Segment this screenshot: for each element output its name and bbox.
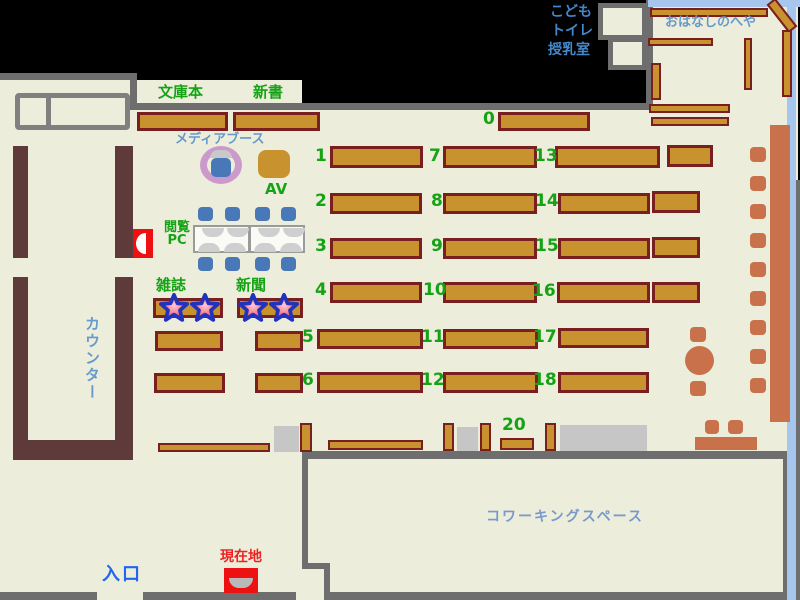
labels-layer: 文庫本新書017132814391541016511176121820メディアブ… bbox=[0, 0, 800, 600]
label-av: AV bbox=[265, 181, 287, 197]
label-shelf-number-14: 14 bbox=[535, 192, 559, 210]
label-story-room: おはなしのへや bbox=[665, 16, 756, 30]
label-shelf-number-4: 4 bbox=[315, 281, 327, 299]
label-shelf-number-0: 0 bbox=[483, 110, 495, 128]
label-shelf-number-6: 6 bbox=[302, 371, 314, 389]
label-shelf-number-20: 20 bbox=[502, 416, 526, 434]
label-coworking-space: コワーキングスペース bbox=[486, 510, 644, 525]
label-media-booth: メディアブース bbox=[175, 133, 264, 147]
label-new-books: 新書 bbox=[253, 84, 283, 100]
label-shelf-number-17: 17 bbox=[533, 328, 557, 346]
label-toilet: トイレ bbox=[551, 24, 593, 39]
label-shelf-number-8: 8 bbox=[431, 192, 443, 210]
label-shelf-number-12: 12 bbox=[421, 371, 445, 389]
label-shelf-number-7: 7 bbox=[429, 147, 441, 165]
label-current-location: 現在地 bbox=[220, 550, 262, 565]
label-shelf-number-3: 3 bbox=[315, 237, 327, 255]
label-shelf-number-16: 16 bbox=[532, 282, 556, 300]
label-kids: こども bbox=[550, 5, 592, 20]
label-paperbacks: 文庫本 bbox=[158, 84, 203, 100]
label-newspapers: 新聞 bbox=[236, 277, 266, 293]
label-shelf-number-5: 5 bbox=[302, 328, 314, 346]
label-shelf-number-13: 13 bbox=[534, 147, 558, 165]
label-shelf-number-11: 11 bbox=[421, 328, 445, 346]
label-magazines: 雑誌 bbox=[156, 277, 186, 293]
label-counter: カウンター bbox=[84, 316, 100, 401]
label-shelf-number-18: 18 bbox=[533, 371, 557, 389]
library-floor-map: 文庫本新書017132814391541016511176121820メディアブ… bbox=[0, 0, 800, 600]
label-reading-pc: 閲覧 PC bbox=[160, 221, 194, 247]
label-shelf-number-10: 10 bbox=[423, 281, 447, 299]
label-nursing-room: 授乳室 bbox=[548, 43, 590, 58]
label-entrance: 入口 bbox=[102, 565, 142, 584]
label-shelf-number-9: 9 bbox=[431, 237, 443, 255]
label-shelf-number-15: 15 bbox=[535, 237, 559, 255]
label-shelf-number-1: 1 bbox=[315, 147, 327, 165]
label-shelf-number-2: 2 bbox=[315, 192, 327, 210]
